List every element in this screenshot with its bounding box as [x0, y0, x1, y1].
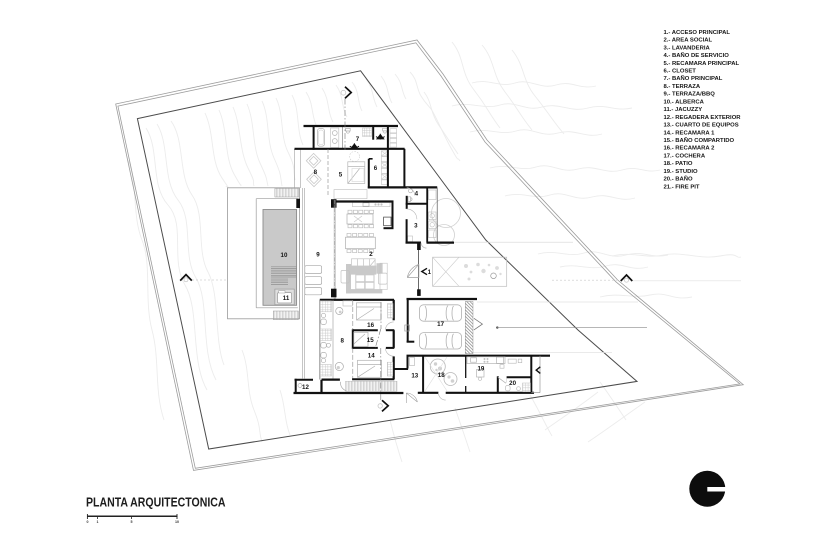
- svg-text:PLANTA ARQUITECTONICA: PLANTA ARQUITECTONICA: [86, 495, 226, 510]
- svg-text:5: 5: [339, 172, 343, 179]
- svg-text:6.- CLOSET: 6.- CLOSET: [664, 69, 697, 75]
- svg-text:4.- BAÑO DE SERVICIO: 4.- BAÑO DE SERVICIO: [664, 52, 730, 59]
- svg-text:20.- BAÑO: 20.- BAÑO: [664, 176, 694, 183]
- svg-text:19.- STUDIO: 19.- STUDIO: [664, 169, 698, 175]
- svg-text:6: 6: [374, 165, 378, 172]
- svg-text:5.- RECAMARA PRINCIPAL: 5.- RECAMARA PRINCIPAL: [664, 61, 740, 67]
- svg-text:8: 8: [340, 337, 344, 344]
- svg-text:18: 18: [438, 372, 445, 379]
- svg-text:18.- PATIO: 18.- PATIO: [664, 161, 693, 167]
- svg-text:7: 7: [356, 136, 360, 143]
- svg-text:8: 8: [314, 169, 318, 176]
- svg-text:14.- RECAMARA 1: 14.- RECAMARA 1: [664, 130, 716, 136]
- svg-text:17: 17: [437, 321, 444, 328]
- svg-text:2.- AREA SOCIAL: 2.- AREA SOCIAL: [664, 38, 713, 44]
- svg-text:3.- LAVANDERIA: 3.- LAVANDERIA: [664, 45, 711, 51]
- svg-text:13: 13: [411, 373, 418, 380]
- svg-text:8.- TERRAZA: 8.- TERRAZA: [664, 84, 701, 90]
- svg-text:7.- BAÑO PRINCIPAL: 7.- BAÑO PRINCIPAL: [664, 75, 723, 82]
- svg-text:16: 16: [367, 322, 374, 329]
- svg-text:17.- COCHERA: 17.- COCHERA: [664, 154, 706, 160]
- svg-text:10: 10: [175, 520, 179, 524]
- svg-text:15.- BAÑO COMPARTIDO: 15.- BAÑO COMPARTIDO: [664, 137, 735, 144]
- svg-text:2: 2: [369, 251, 373, 258]
- svg-text:10.- ALBERCA: 10.- ALBERCA: [664, 99, 705, 105]
- svg-text:1: 1: [428, 269, 432, 276]
- svg-text:19: 19: [477, 365, 484, 372]
- svg-text:9.- TERRAZA/BBQ: 9.- TERRAZA/BBQ: [664, 92, 716, 98]
- svg-text:9: 9: [316, 251, 320, 258]
- svg-text:20: 20: [509, 380, 516, 387]
- svg-text:13.- CUARTO DE EQUIPOS: 13.- CUARTO DE EQUIPOS: [664, 123, 739, 129]
- svg-text:11: 11: [283, 295, 290, 302]
- svg-text:12: 12: [302, 384, 309, 391]
- svg-text:11.- JACUZZY: 11.- JACUZZY: [664, 107, 703, 113]
- svg-text:4: 4: [415, 191, 419, 198]
- svg-text:21.- FIRE PIT: 21.- FIRE PIT: [664, 184, 700, 190]
- svg-text:1.- ACCESO PRINCIPAL: 1.- ACCESO PRINCIPAL: [664, 30, 731, 36]
- svg-text:14: 14: [368, 353, 375, 360]
- svg-text:1: 1: [97, 520, 99, 524]
- svg-text:3: 3: [414, 223, 418, 230]
- svg-text:0: 0: [87, 520, 89, 524]
- svg-text:5: 5: [131, 520, 133, 524]
- svg-text:10: 10: [281, 252, 288, 259]
- svg-text:15: 15: [367, 337, 374, 344]
- svg-text:16.- RECAMARA 2: 16.- RECAMARA 2: [664, 146, 716, 152]
- svg-text:12.- REGADERA EXTERIOR: 12.- REGADERA EXTERIOR: [664, 115, 742, 121]
